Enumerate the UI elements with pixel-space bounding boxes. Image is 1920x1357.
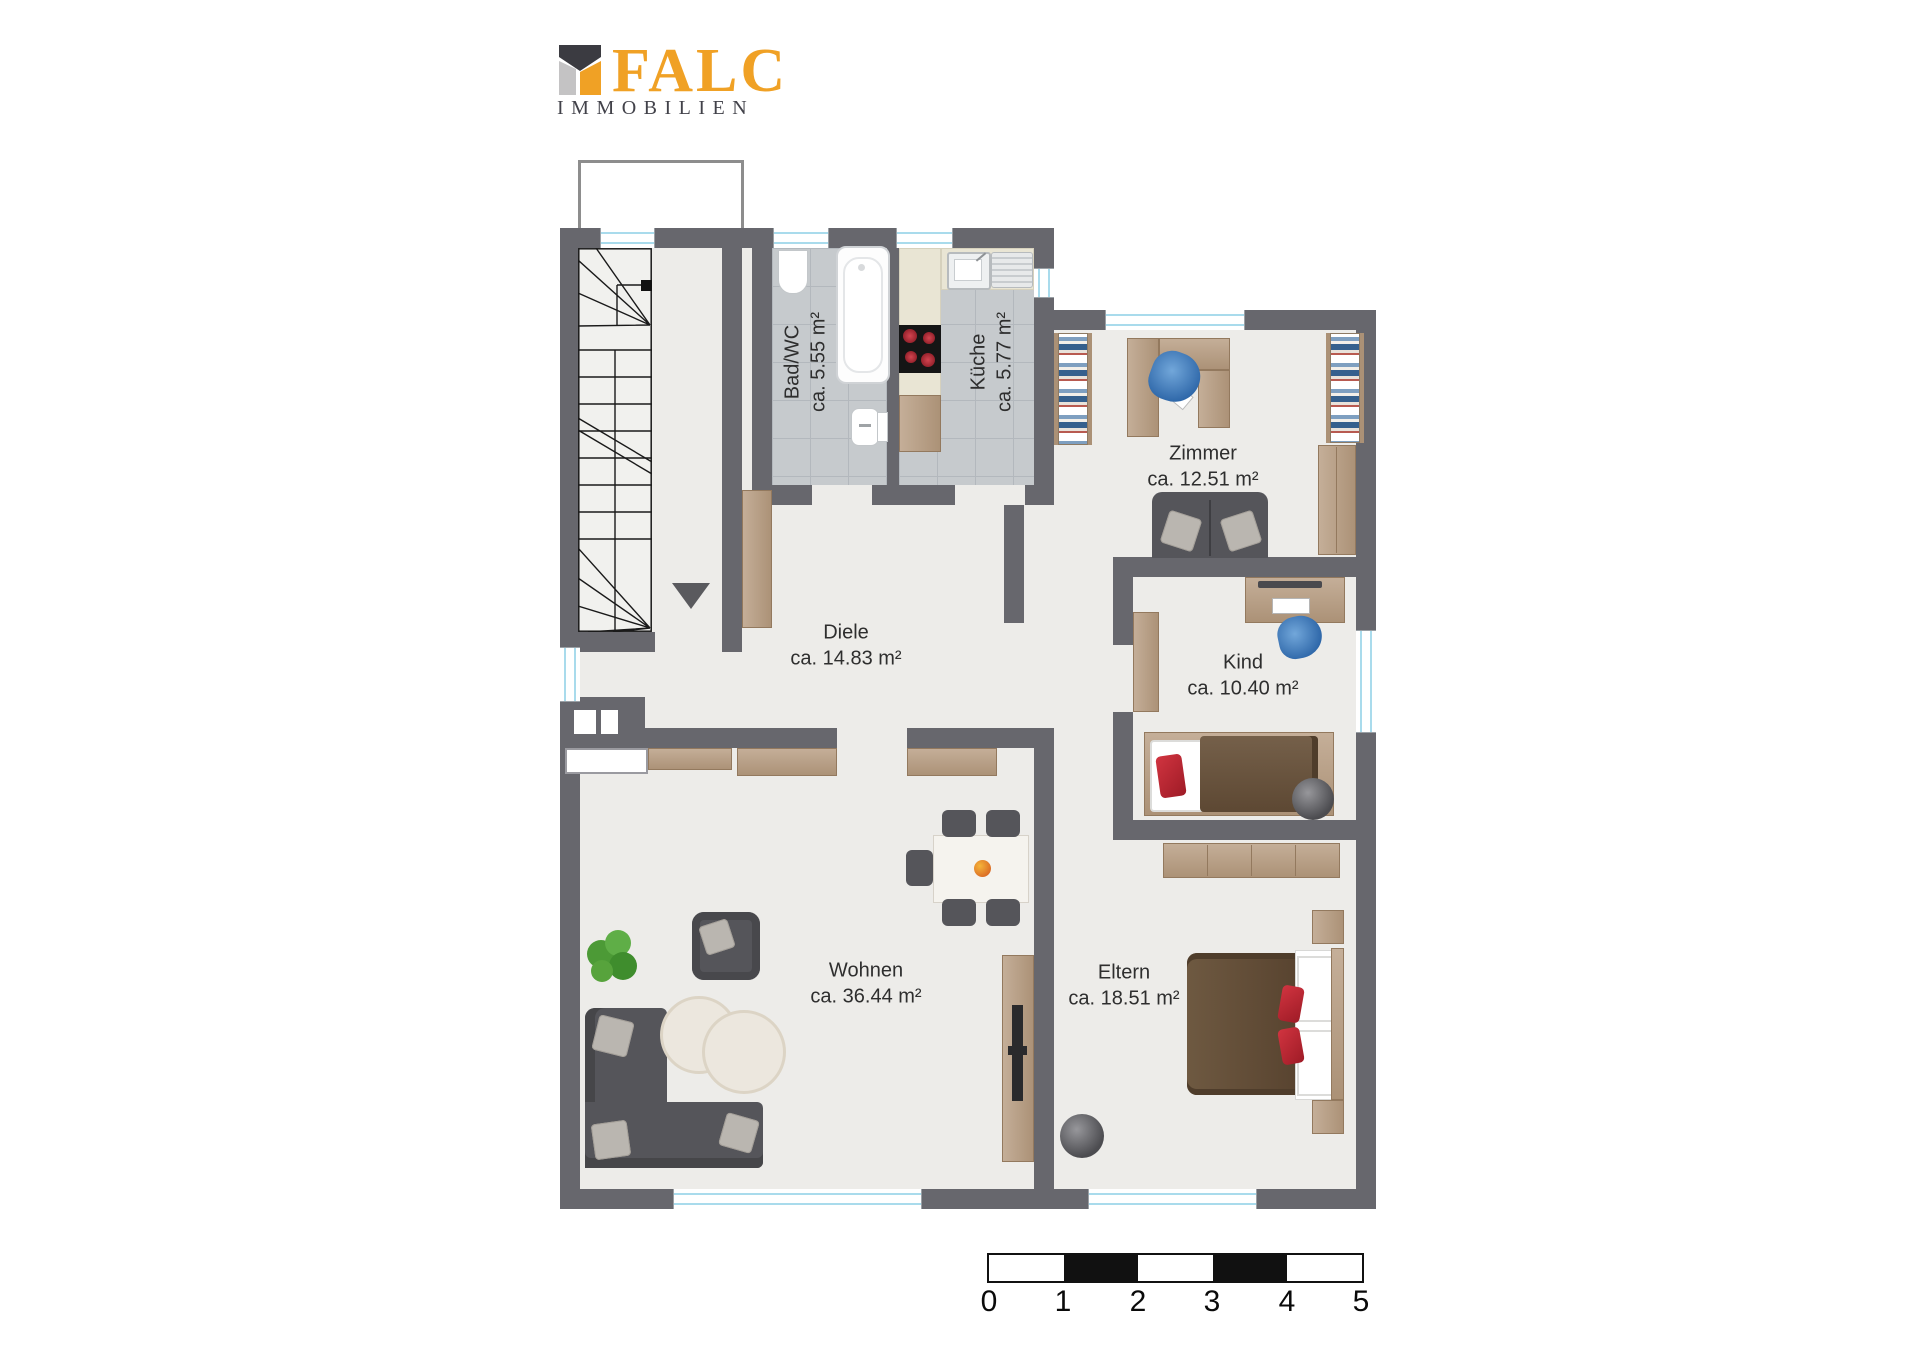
- fruit-bowl: [974, 860, 991, 877]
- window: [773, 228, 829, 248]
- window: [560, 647, 580, 702]
- wall: [1025, 485, 1054, 505]
- room-area: ca. 12.51 m²: [1147, 469, 1258, 491]
- hall-cabinet: [742, 490, 772, 628]
- floor-corridor: [1034, 505, 1054, 728]
- scale-segment: [1064, 1255, 1139, 1281]
- room-label-eltern: Eltern ca. 18.51 m²: [1068, 960, 1179, 1013]
- window: [673, 1189, 922, 1209]
- bookshelf: [1054, 333, 1092, 445]
- scale-segment: [1287, 1255, 1362, 1281]
- monitor: [1258, 581, 1322, 588]
- nightstand: [1312, 910, 1344, 944]
- wall: [752, 228, 772, 505]
- bathtub-basin: [843, 257, 883, 373]
- room-label-bad: Bad/WC ca. 5.55 m²: [780, 312, 833, 412]
- wall: [887, 485, 955, 505]
- sideboard: [907, 748, 997, 776]
- wall-niche: [574, 710, 596, 734]
- pouf: [1292, 778, 1334, 820]
- kitchen-sink: [947, 252, 991, 290]
- pouf: [1060, 1114, 1104, 1158]
- wall: [1034, 728, 1054, 1189]
- wall: [1113, 557, 1356, 577]
- wardrobe: [1318, 445, 1356, 555]
- scale-tick: 5: [1353, 1285, 1370, 1319]
- wall-niche: [601, 710, 618, 734]
- room-area: ca. 10.40 m²: [1187, 678, 1298, 700]
- room-name: Bad/WC: [782, 325, 804, 399]
- room-label-wohnen: Wohnen ca. 36.44 m²: [810, 958, 921, 1011]
- wall: [1356, 310, 1376, 1209]
- room-name: Kind: [1223, 652, 1263, 674]
- chair: [906, 850, 933, 886]
- room-label-kind: Kind ca. 10.40 m²: [1187, 650, 1298, 703]
- room-area: ca. 5.77 m²: [994, 312, 1016, 412]
- scale-tick: 2: [1130, 1285, 1147, 1319]
- chair: [942, 899, 976, 926]
- room-name: Diele: [823, 622, 869, 644]
- wardrobe: [1163, 843, 1340, 878]
- room-area: ca. 14.83 m²: [790, 648, 901, 670]
- wall: [1113, 820, 1356, 840]
- room-label-zimmer: Zimmer ca. 12.51 m²: [1147, 441, 1258, 494]
- falc-logo: FALC IMMOBILIEN: [0, 0, 900, 130]
- chair: [986, 899, 1020, 926]
- scale-segment: [989, 1255, 1064, 1281]
- keyboard: [1272, 598, 1310, 614]
- wall: [1004, 505, 1024, 623]
- scale-segment: [1138, 1255, 1213, 1281]
- chair: [942, 810, 976, 837]
- round-rug: [702, 1010, 786, 1094]
- window: [1088, 1189, 1257, 1209]
- washbasin: [778, 250, 808, 294]
- sofa-cushion: [591, 1120, 632, 1161]
- scale-segment: [1213, 1255, 1288, 1281]
- plant: [583, 926, 643, 986]
- scale-bar: [987, 1253, 1364, 1283]
- toilet: [851, 406, 887, 446]
- staircase: [578, 248, 652, 632]
- room-area: ca. 5.55 m²: [808, 312, 830, 412]
- wall: [907, 728, 1034, 748]
- blanket: [1187, 953, 1295, 1095]
- room-label-diele: Diele ca. 14.83 m²: [790, 620, 901, 673]
- coat-rack-hooks: [650, 741, 730, 748]
- window: [1356, 630, 1376, 733]
- chair: [986, 810, 1020, 837]
- bookshelf: [1326, 333, 1364, 443]
- hall-wardrobe: [565, 748, 648, 774]
- loveseat: [1152, 492, 1268, 558]
- scale-tick: 1: [1055, 1285, 1072, 1319]
- wall: [722, 228, 742, 652]
- falc-logo-icon: [558, 44, 602, 96]
- room-area: ca. 36.44 m²: [810, 986, 921, 1008]
- upper-landing-outline: [578, 160, 744, 231]
- bathtub-drain-icon: [858, 264, 865, 271]
- stove: [899, 325, 941, 373]
- bathtub: [836, 246, 890, 384]
- desk: [1198, 370, 1230, 428]
- coat-rack: [648, 748, 732, 770]
- scale-tick: 0: [981, 1285, 998, 1319]
- double-bed: [1187, 948, 1344, 1100]
- wall: [1113, 557, 1133, 645]
- room-name: Eltern: [1098, 962, 1150, 984]
- brand-subtitle: IMMOBILIEN: [557, 97, 754, 120]
- shelf: [1133, 612, 1159, 712]
- floor-plan-page: FALC IMMOBILIEN: [0, 0, 1920, 1357]
- scale-tick: 4: [1279, 1285, 1296, 1319]
- dining-table: [933, 835, 1029, 903]
- tv-stand: [1008, 1046, 1027, 1055]
- room-label-kueche: Küche ca. 5.77 m²: [966, 312, 1019, 412]
- pillow: [1297, 1030, 1333, 1096]
- scale-tick: 3: [1204, 1285, 1221, 1319]
- nightstand: [1312, 1100, 1344, 1134]
- armchair: [692, 912, 760, 980]
- window: [1034, 268, 1054, 298]
- room-name: Küche: [968, 334, 990, 391]
- window: [1105, 310, 1245, 330]
- stair-direction-arrow-icon: [672, 583, 710, 609]
- room-area: ca. 18.51 m²: [1068, 988, 1179, 1010]
- kitchen-cabinet: [899, 395, 941, 452]
- sideboard: [737, 748, 837, 776]
- kitchen-drainer: [991, 252, 1033, 288]
- room-name: Zimmer: [1169, 443, 1237, 465]
- headboard: [1331, 948, 1344, 1100]
- room-name: Wohnen: [829, 960, 903, 982]
- window: [896, 228, 953, 248]
- window: [600, 228, 655, 248]
